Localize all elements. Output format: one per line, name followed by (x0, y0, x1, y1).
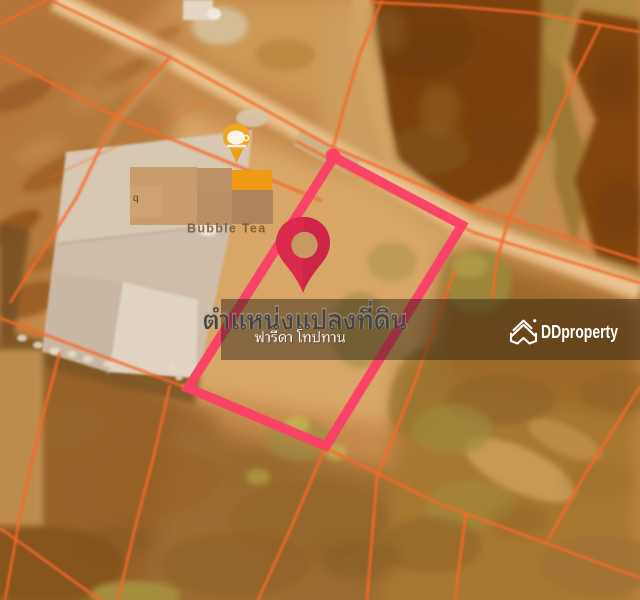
svg-text:DDproperty: DDproperty (541, 321, 619, 342)
svg-text:Bubble Tea: Bubble Tea (187, 222, 266, 236)
svg-text:q: q (133, 193, 139, 204)
